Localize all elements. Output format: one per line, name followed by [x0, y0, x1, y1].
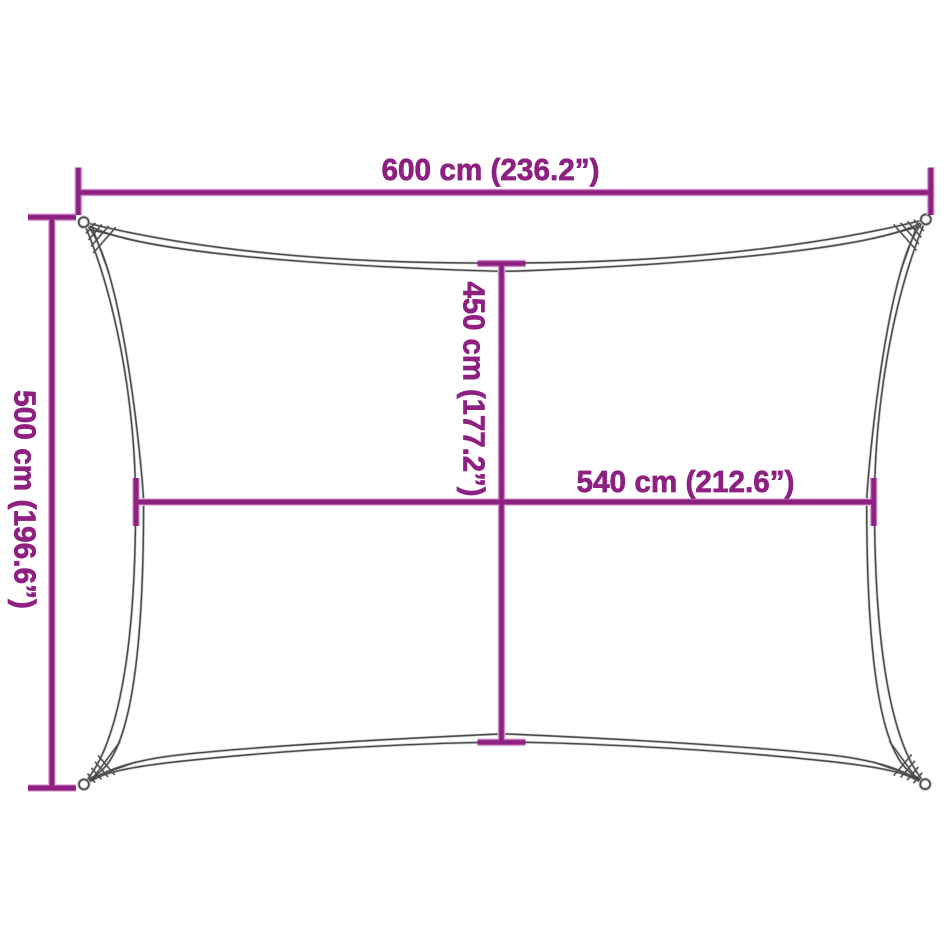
- svg-text:450 cm (177.2”): 450 cm (177.2”): [457, 282, 492, 497]
- svg-text:540 cm (212.6”): 540 cm (212.6”): [577, 464, 795, 499]
- svg-text:600 cm (236.2”): 600 cm (236.2”): [382, 152, 600, 187]
- svg-text:500 cm (196.6”): 500 cm (196.6”): [8, 390, 43, 609]
